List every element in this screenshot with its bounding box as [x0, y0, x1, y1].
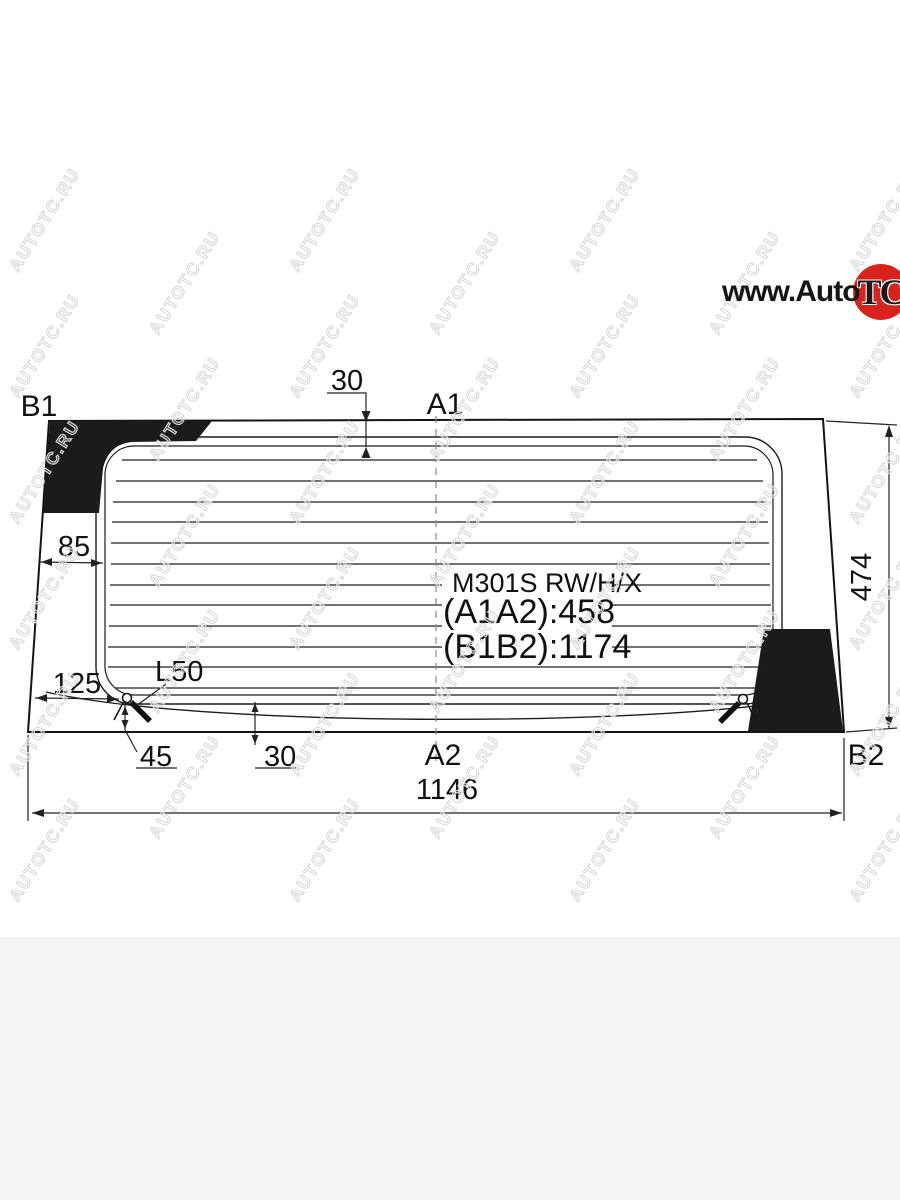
b1b2-dimension-text: (B1B2):1174 [443, 628, 631, 666]
terminal-connector-right [720, 695, 755, 723]
arrow-down-icon [252, 735, 259, 744]
wire-label: L50 [155, 656, 203, 688]
arrow-left-icon [36, 694, 47, 702]
dim-left-corner-value: 125 [53, 668, 101, 700]
ceramic-fill-top-left [43, 421, 212, 513]
arrow-up-icon [362, 447, 371, 458]
product-diagram-image: 30 85 125 L50 45 30 [0, 0, 900, 1200]
label-a2: A2 [425, 739, 462, 772]
dim-corner-drop-value: 45 [140, 741, 172, 773]
arrow-left-icon [32, 809, 44, 817]
arrow-left-icon [41, 558, 52, 566]
dim-width-value: 1146 [416, 774, 478, 806]
arrow-right-icon [830, 809, 842, 817]
arrow-down-icon [122, 720, 129, 729]
ceramic-band-inner-line [105, 446, 773, 695]
dim-left-edge-value: 85 [58, 531, 90, 563]
arrow-right-icon [107, 695, 118, 703]
defroster-lines [108, 460, 772, 688]
rear-window-technical-drawing: 30 85 125 L50 45 30 [0, 0, 900, 1200]
logo-prefix-text: www.Auto [722, 275, 860, 309]
label-b2: B2 [848, 739, 885, 772]
dim-bottom-inset-value: 30 [264, 741, 296, 773]
site-logo: www.Auto TC .ru [722, 262, 900, 322]
arrow-down-icon [885, 717, 893, 729]
a1a2-dimension-text: (A1A2):458 [443, 593, 615, 631]
glass-bottom-edge-line [46, 692, 798, 719]
label-b1: B1 [21, 390, 58, 423]
arrow-up-icon [885, 425, 893, 437]
logo-circle-text: TC [858, 271, 900, 313]
label-a1: A1 [427, 388, 464, 421]
dim-height-value: 474 [846, 553, 878, 601]
dim-top-inset-value: 30 [331, 365, 363, 397]
arrow-up-icon [122, 706, 129, 715]
ceramic-fill-bottom-right [748, 629, 843, 731]
